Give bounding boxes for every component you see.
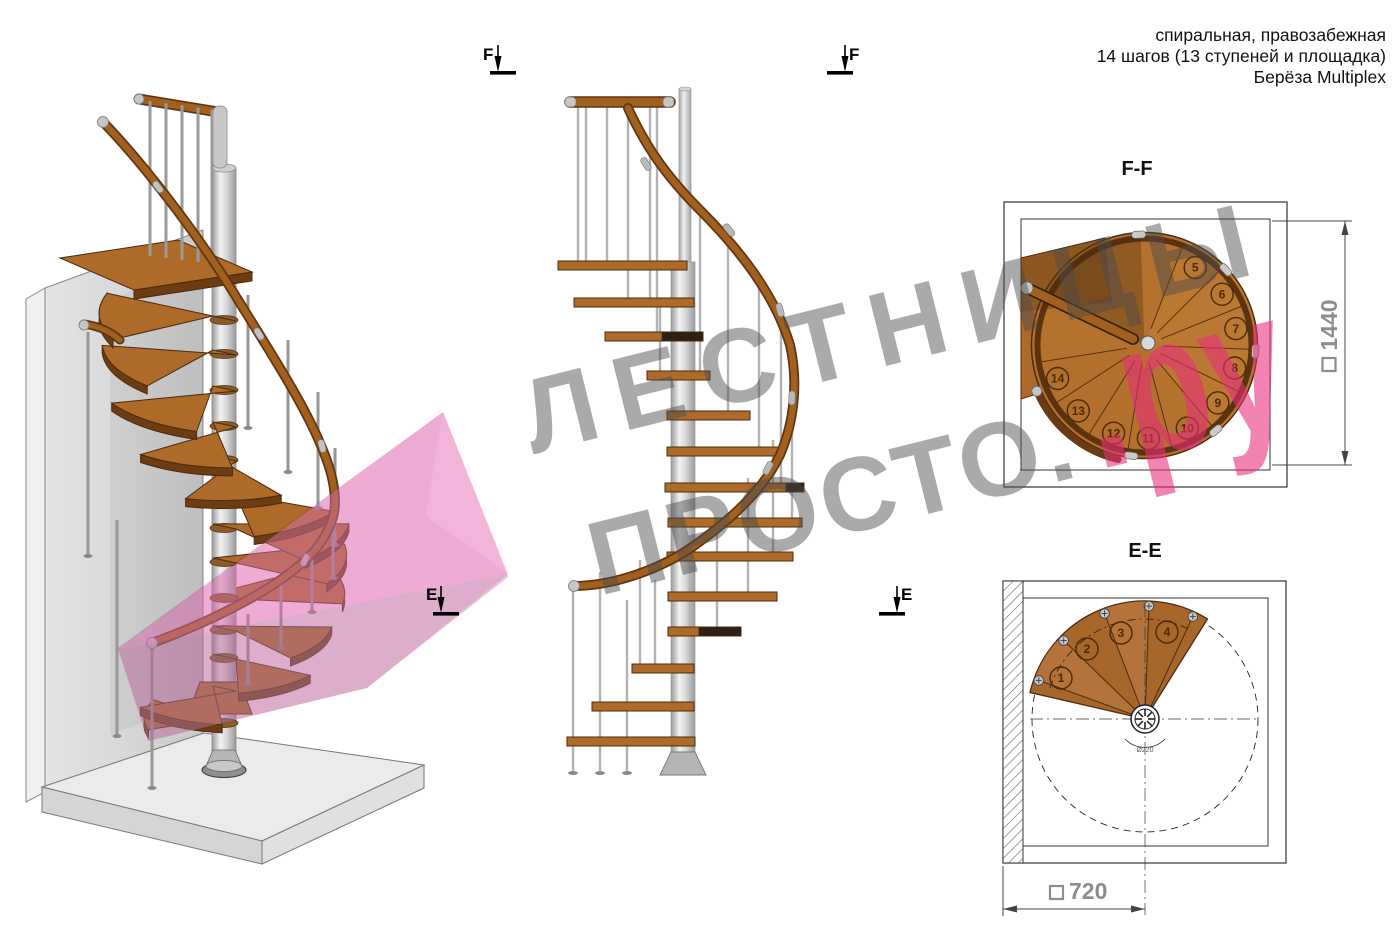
svg-text:1440: 1440 bbox=[1316, 299, 1342, 350]
svg-text:E-E: E-E bbox=[1128, 540, 1161, 562]
svg-text:14: 14 bbox=[1051, 372, 1065, 386]
svg-text:Ø220: Ø220 bbox=[1136, 747, 1153, 754]
svg-text:2: 2 bbox=[1084, 642, 1091, 656]
svg-text:720: 720 bbox=[1069, 878, 1107, 904]
svg-text:E: E bbox=[426, 585, 437, 604]
svg-text:F-F: F-F bbox=[1121, 158, 1152, 180]
svg-text:спиральная, правозабежная: спиральная, правозабежная bbox=[1155, 25, 1386, 45]
svg-text:F: F bbox=[849, 45, 859, 64]
svg-text:4: 4 bbox=[1164, 625, 1171, 639]
svg-text:3: 3 bbox=[1118, 626, 1125, 640]
svg-text:E: E bbox=[901, 585, 912, 604]
svg-text:14 шагов (13 ступеней и площад: 14 шагов (13 ступеней и площадка) bbox=[1097, 46, 1386, 66]
svg-text:Берёза Multiplex: Берёза Multiplex bbox=[1254, 67, 1387, 87]
svg-text:1: 1 bbox=[1058, 671, 1065, 685]
svg-text:F: F bbox=[483, 45, 493, 64]
